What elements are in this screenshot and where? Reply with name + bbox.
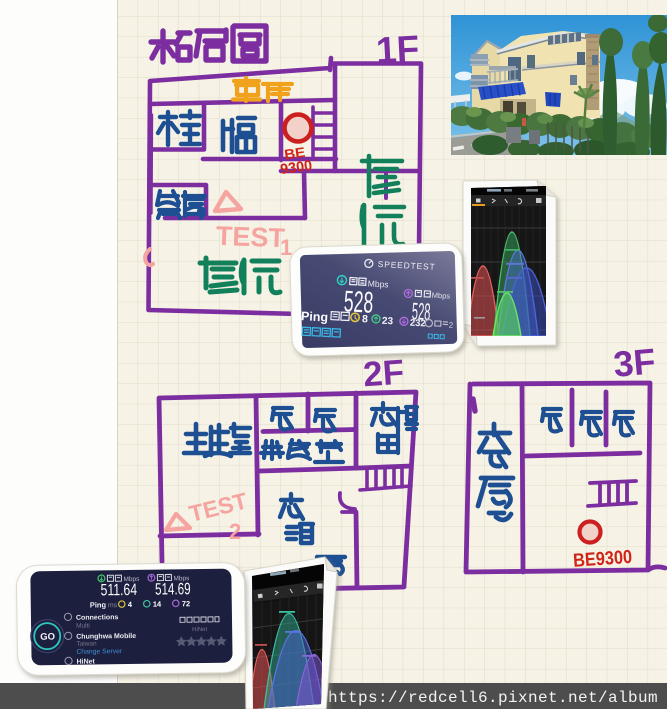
svg-text:14: 14 <box>153 600 162 609</box>
svg-text:511.64: 511.64 <box>100 581 137 600</box>
svg-text:BE9300: BE9300 <box>573 547 633 572</box>
svg-text:ms: ms <box>108 602 118 609</box>
svg-text:232: 232 <box>410 318 426 330</box>
svg-text:2F: 2F <box>362 353 405 395</box>
svg-text:Taiwan: Taiwan <box>76 640 97 647</box>
svg-text:8: 8 <box>362 313 369 325</box>
svg-text:Connections: Connections <box>76 614 119 622</box>
svg-text:Chunghwa Mobile: Chunghwa Mobile <box>76 633 136 641</box>
svg-text:3F: 3F <box>612 340 657 385</box>
svg-text:TEST: TEST <box>215 221 286 253</box>
svg-text:HiNet: HiNet <box>192 627 207 633</box>
svg-text:Change Server: Change Server <box>76 648 123 656</box>
svg-text:https://redcell6.pixnet.net/al: https://redcell6.pixnet.net/album <box>328 689 658 707</box>
svg-text:Mbps: Mbps <box>432 291 451 301</box>
svg-text:514.69: 514.69 <box>155 580 191 598</box>
svg-text:Multi: Multi <box>76 623 90 630</box>
svg-text:Ping: Ping <box>90 600 107 609</box>
svg-text:GO: GO <box>40 632 55 643</box>
svg-text:72: 72 <box>182 599 190 608</box>
svg-text:Ping: Ping <box>301 309 329 324</box>
svg-text:2: 2 <box>229 519 241 544</box>
svg-text:1: 1 <box>280 235 292 260</box>
svg-text:HiNet: HiNet <box>77 658 96 665</box>
svg-text:23: 23 <box>382 316 394 328</box>
